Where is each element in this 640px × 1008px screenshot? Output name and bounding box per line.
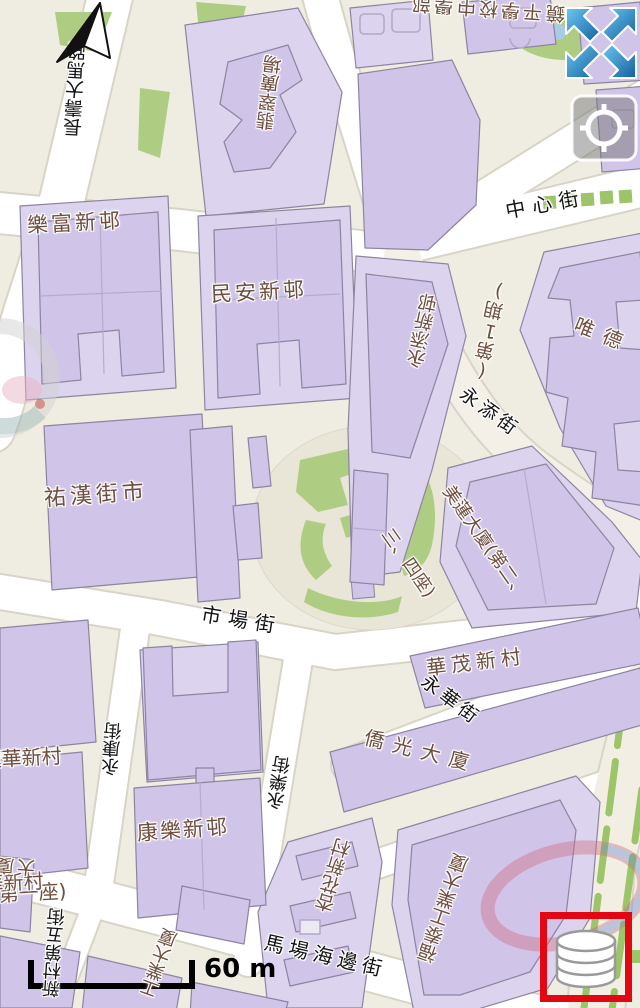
data-layer-tool-highlight (540, 912, 632, 1002)
building-label-minan: 民安新邨 (210, 279, 307, 308)
compass-north-arrow (50, 0, 120, 66)
building (190, 426, 240, 602)
map-view[interactable]: 長壽大馬路 翡翠廣場 鏡平學校中學部 中心街 樂富新邨 民安新邨 永添新邨 (第… (0, 0, 640, 1008)
fullscreen-button[interactable] (562, 4, 640, 82)
expand-arrow-nw-icon (566, 8, 600, 42)
expand-arrow-ne-icon (602, 8, 636, 42)
expand-arrow-sw-icon (566, 44, 600, 78)
street-label-yongkang: 永康街 (101, 721, 125, 776)
building-label-daxia-partial: 大廈 (0, 857, 40, 878)
scale-bar-label: 60 m (204, 954, 276, 984)
database-icon (557, 931, 615, 987)
building (248, 436, 271, 488)
database-button[interactable] (547, 919, 625, 995)
expand-arrow-se-icon (602, 44, 636, 78)
building-label-lefu: 樂富新邨 (26, 210, 123, 239)
locate-button[interactable] (570, 94, 640, 164)
building (233, 503, 262, 560)
